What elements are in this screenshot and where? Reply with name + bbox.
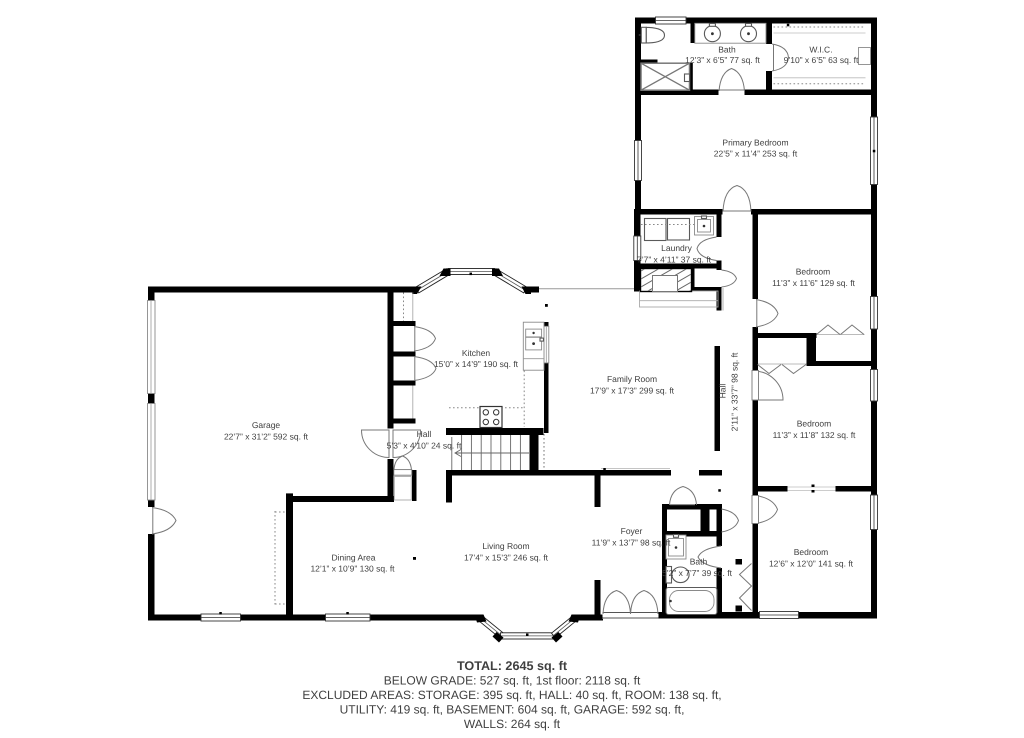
svg-text:Living Room: Living Room (482, 541, 529, 551)
svg-text:TOTAL: 2645 sq. ft: TOTAL: 2645 sq. ft (457, 659, 568, 673)
svg-text:EXCLUDED AREAS: STORAGE: 395 s: EXCLUDED AREAS: STORAGE: 395 sq. ft, HAL… (302, 688, 721, 702)
svg-text:12’1” x 10’9” 130 sq. ft: 12’1” x 10’9” 130 sq. ft (310, 564, 395, 574)
svg-text:Foyer: Foyer (621, 526, 643, 536)
svg-text:Hall: Hall (417, 429, 432, 439)
svg-text:Dining Area: Dining Area (332, 553, 376, 563)
svg-text:5’2” x 7’7” 39 sq. ft: 5’2” x 7’7” 39 sq. ft (662, 568, 733, 578)
svg-text:Bedroom: Bedroom (797, 419, 832, 429)
svg-text:Bath: Bath (690, 557, 708, 567)
svg-text:Hall: Hall (718, 384, 728, 399)
svg-text:17’4” x 15’3” 246 sq. ft: 17’4” x 15’3” 246 sq. ft (464, 553, 549, 563)
svg-text:BELOW GRADE: 527 sq. ft, 1st f: BELOW GRADE: 527 sq. ft, 1st floor: 2118… (384, 674, 641, 688)
svg-text:Primary Bedroom: Primary Bedroom (722, 138, 788, 148)
svg-text:9’10” x 6’5” 63 sq. ft: 9’10” x 6’5” 63 sq. ft (784, 55, 859, 65)
svg-text:Bath: Bath (718, 45, 736, 55)
svg-text:2’11” x 33’7” 98 sq. ft: 2’11” x 33’7” 98 sq. ft (730, 352, 740, 431)
svg-text:Bedroom: Bedroom (796, 267, 831, 277)
svg-text:Family Room: Family Room (607, 374, 657, 384)
svg-text:22’5” x 11’4” 253 sq. ft: 22’5” x 11’4” 253 sq. ft (714, 149, 798, 159)
svg-text:11’3” x 11’8” 132 sq. ft: 11’3” x 11’8” 132 sq. ft (773, 430, 856, 440)
svg-text:W.I.C.: W.I.C. (809, 45, 832, 55)
svg-text:Kitchen: Kitchen (462, 348, 491, 358)
svg-text:12’6” x 12’0” 141 sq. ft: 12’6” x 12’0” 141 sq. ft (769, 559, 854, 569)
svg-text:7’7” x 4’11” 37 sq. ft: 7’7” x 4’11” 37 sq. ft (637, 255, 712, 265)
svg-text:5’3” x 4’10” 24 sq. ft: 5’3” x 4’10” 24 sq. ft (387, 441, 462, 451)
svg-text:UTILITY: 419 sq. ft, BASEMENT:: UTILITY: 419 sq. ft, BASEMENT: 604 sq. f… (340, 703, 685, 717)
svg-text:17’9” x 17’3” 299 sq. ft: 17’9” x 17’3” 299 sq. ft (590, 386, 675, 396)
svg-text:WALLS: 264 sq. ft: WALLS: 264 sq. ft (464, 717, 561, 731)
svg-text:15’0” x 14’9” 190 sq. ft: 15’0” x 14’9” 190 sq. ft (434, 359, 519, 369)
svg-text:11’3” x 11’6” 129 sq. ft: 11’3” x 11’6” 129 sq. ft (772, 278, 855, 288)
svg-text:Garage: Garage (252, 420, 281, 430)
svg-text:Laundry: Laundry (661, 243, 692, 253)
svg-text:Bedroom: Bedroom (794, 547, 829, 557)
svg-text:22’7” x 31’2” 592 sq. ft: 22’7” x 31’2” 592 sq. ft (224, 432, 309, 442)
svg-text:12’3” x 6’5” 77 sq. ft: 12’3” x 6’5” 77 sq. ft (685, 55, 760, 65)
svg-text:11’9” x 13’7” 98 sq. ft: 11’9” x 13’7” 98 sq. ft (592, 538, 671, 548)
